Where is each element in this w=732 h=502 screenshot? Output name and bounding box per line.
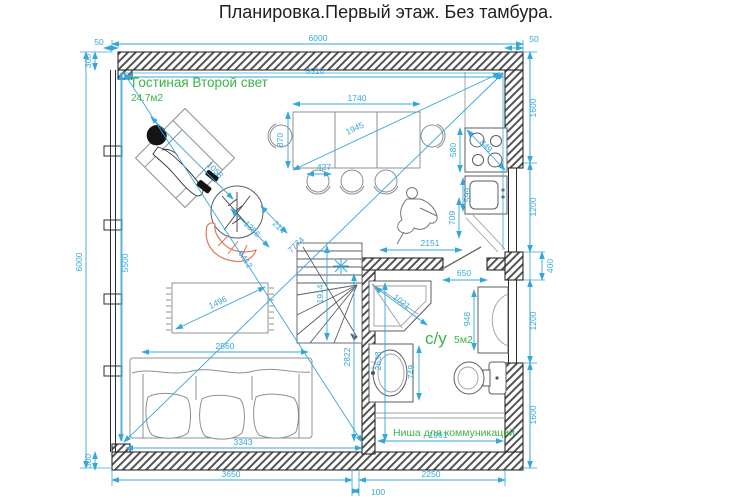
dim-bottom-gap: 100 [371, 487, 385, 497]
bathroom-area: 5м2 [454, 334, 473, 346]
dim-left-top: 300 [83, 54, 93, 68]
dim-door-width: 650 [457, 268, 471, 278]
sofa-pillow [200, 395, 245, 439]
dim-top-inner: 5510 [306, 66, 325, 76]
living-room-label: Гостиная Второй свет [132, 75, 268, 90]
dim-right-pier: 400 [545, 259, 555, 273]
floor-plan-page: Планировка.Первый этаж. Без тамбура. [0, 0, 732, 502]
wall-bathroom-top-left [362, 258, 443, 270]
dim-left-bottom: 300 [83, 454, 93, 468]
niche-label: Ниша для коммуникаций [393, 427, 515, 439]
dim-top-overall: 6000 [309, 33, 328, 43]
dim-cabinet-height: 948 [462, 312, 472, 326]
dim-sofa-width: 2560 [216, 341, 235, 351]
dim-bath-height: 2638 [373, 351, 383, 370]
dim-right-lower-window: 1200 [528, 311, 538, 330]
toilet [454, 362, 506, 394]
dim-chair-width: 427 [317, 162, 331, 172]
dim-vanity-width: 749 [406, 365, 416, 379]
dim-left-overall: 6000 [74, 252, 84, 271]
dim-left-inner: 5500 [120, 253, 130, 272]
bath-cabinet [478, 287, 508, 353]
wall-bottom [112, 452, 523, 470]
dim-kitchen-width: 2151 [421, 238, 440, 248]
dim-right-bottom: 1600 [528, 405, 538, 424]
bathroom-label: с/у [425, 329, 447, 348]
wall-right-upper [505, 70, 523, 168]
wall-bathroom-top-right [487, 258, 505, 270]
dim-bottom-left: 3650 [222, 469, 241, 479]
dim-table-depth: 870 [275, 133, 285, 147]
dim-bottom-right: 2250 [422, 469, 441, 479]
stairs [297, 243, 362, 343]
living-room-area: 24.7м2 [131, 93, 163, 104]
wall-right-pier [505, 252, 523, 280]
dim-top-right-offset: 50 [529, 34, 539, 44]
dim-stove-width: 580 [448, 143, 458, 157]
floor-plan-drawing: Планировка.Первый этаж. Без тамбура. [0, 0, 732, 502]
wall-right-lower [505, 363, 523, 455]
sofa [130, 358, 312, 439]
sofa-pillow [146, 393, 191, 438]
page-title: Планировка.Первый этаж. Без тамбура. [219, 2, 553, 22]
dim-living-inner-width: 3343 [234, 437, 253, 447]
dim-right-top: 1600 [528, 98, 538, 117]
sofa-pillow [254, 394, 299, 438]
snowflake-symbol [333, 258, 349, 274]
dim-person-width: 709 [447, 211, 457, 225]
dim-right-upper-window: 1200 [528, 197, 538, 216]
dim-table-width: 1740 [348, 93, 367, 103]
dim-sink-width: 599 [462, 188, 472, 202]
dim-bath-wall-height: 2822 [342, 347, 352, 366]
dim-stairs-width: 1914 [315, 284, 325, 303]
dim-top-left-offset: 50 [94, 37, 104, 47]
